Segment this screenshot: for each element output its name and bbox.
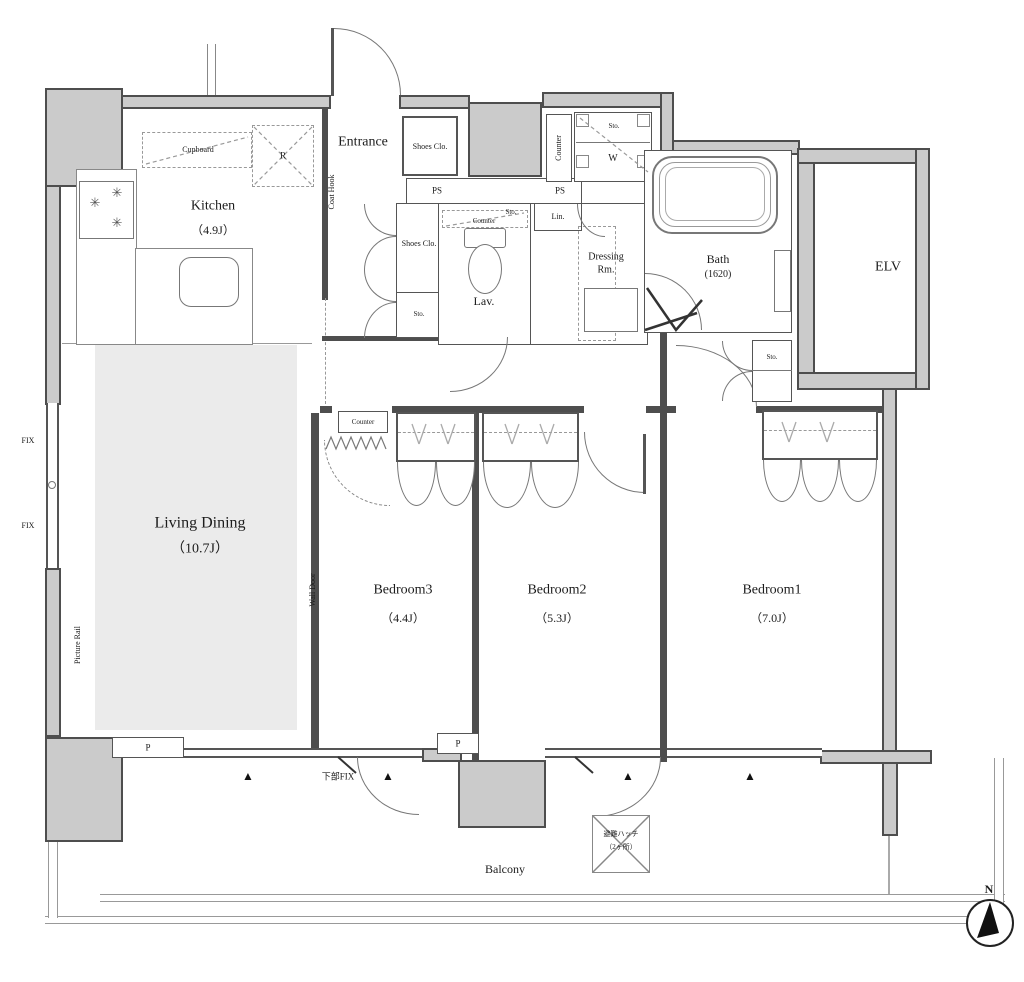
dressing-line2: Rm. (598, 264, 615, 275)
washer-pan-inner (584, 288, 638, 332)
lower-fix-label: 下部FIX (322, 772, 355, 783)
bedroom3-door-arc (324, 440, 390, 506)
shoes-door-arc-2 (364, 236, 396, 270)
lav-door-arc (450, 337, 508, 392)
shoes-door-arc-1 (364, 204, 396, 236)
balcony-edge-left (48, 842, 58, 918)
refrigerator-label: R (280, 151, 286, 162)
wall-bedroom2-1 (660, 330, 667, 762)
shoes-door-arc-4 (364, 302, 396, 338)
entrance-door-arc (334, 28, 401, 95)
bath-label: Bath (707, 252, 730, 266)
washer-label: W (608, 153, 617, 165)
cupboard-label: Cupboard (182, 145, 214, 155)
storage-hall-label: Sto. (413, 310, 424, 318)
living-dining-label: Living Dining (154, 513, 245, 532)
closet-bifold-b3-1 (397, 462, 436, 506)
bedroom1-label: Bedroom1 (742, 583, 801, 600)
elv-wall-left (797, 148, 815, 390)
picture-rail-label: Picture Rail (73, 626, 83, 664)
pillar-label-mid: P (455, 739, 460, 750)
burner-icon-1: ✳ (90, 195, 101, 211)
burner-icon-2: ✳ (112, 185, 123, 201)
closet-bifold-b1-3 (839, 460, 877, 502)
compass-north-label: N (985, 882, 994, 896)
wall-right (882, 388, 897, 752)
closet-bifold-b2-2 (531, 462, 579, 508)
balcony-rail-outer (45, 916, 1005, 924)
bath-size: (1620) (705, 269, 732, 281)
pillar-label-left: P (145, 743, 150, 754)
bedroom2-size: （5.3J） (535, 611, 579, 625)
window-marker-4: ▲ (744, 769, 756, 783)
bedroom3-size: （4.4J） (381, 611, 425, 625)
window-marker-3: ▲ (622, 769, 634, 783)
living-counter-label: Counter (352, 418, 375, 426)
closet-rail-b3 (398, 432, 474, 433)
shoes-door-arc-3 (364, 270, 396, 302)
balcony-partition-block (458, 760, 546, 828)
balcony-divider-line (888, 836, 890, 894)
kitchen-size: （4.9J） (191, 223, 235, 237)
counter-top-label: Counter (554, 135, 564, 161)
closet-rail-b1 (764, 430, 876, 431)
storage-corridor-divider (752, 370, 792, 372)
wall-bottom-right-t (820, 750, 932, 764)
shoes-closet-top-label: Shoes Clo. (409, 142, 451, 152)
stove (79, 181, 134, 239)
window-marker-2: ▲ (382, 769, 394, 783)
shaft-block (468, 102, 542, 177)
washer-corner-2 (637, 114, 650, 127)
fix-window-mullion (48, 481, 56, 489)
kitchen-opening-dashed (325, 298, 326, 404)
kitchen-label: Kitchen (191, 199, 235, 216)
ps-left-label: PS (432, 186, 442, 197)
burner-icon-3: ✳ (112, 215, 123, 231)
floor-plan: Kitchen （4.9J） Cupboard R Entrance Coat … (0, 0, 1024, 982)
washer-area-divider (576, 142, 650, 144)
window-south-right (545, 748, 822, 758)
storage-corridor-label: Sto. (766, 353, 777, 361)
bath-counter-fixture (774, 250, 791, 312)
closet-bifold-b2-1 (483, 462, 531, 508)
balcony-edge-right (994, 758, 1004, 918)
entrance-label: Entrance (338, 135, 388, 152)
storage-lav-label: Sto. (505, 208, 516, 216)
wall-top-a (121, 95, 331, 109)
kitchen-sink (179, 257, 239, 307)
wall-top-b (399, 95, 470, 109)
escape-hatch-line1: 避難ハッチ (604, 830, 639, 838)
elv-wall-top (797, 148, 930, 164)
fix-label-2: FIX (22, 521, 35, 531)
closet-bedroom2 (482, 412, 579, 462)
bedroom2-label: Bedroom2 (527, 583, 586, 600)
wall-left-lower (45, 568, 61, 737)
closet-bedroom3 (396, 412, 476, 462)
balcony-label: Balcony (485, 862, 525, 876)
elv-wall-bottom (797, 372, 930, 390)
washer-corner-1 (576, 114, 589, 127)
coat-hook-label: Coat Hook (327, 175, 337, 210)
closet-bedroom1 (762, 410, 878, 460)
elv-label: ELV (875, 260, 901, 277)
storage-top-label: Sto. (608, 122, 619, 130)
dressing-label: Dressing Rm. (588, 252, 624, 277)
living-dining-size: （10.7J） (171, 542, 229, 559)
window-marker-1: ▲ (242, 769, 254, 783)
lav-label: Lav. (474, 294, 495, 308)
closet-bifold-b1-2 (801, 460, 839, 502)
bedroom2-door-arc (584, 432, 645, 493)
ps-right-label: PS (555, 186, 565, 197)
balcony-rail-inner (100, 894, 1005, 902)
bedroom2-door-leaf (643, 434, 646, 494)
closet-bifold-b3-2 (436, 462, 475, 506)
vent-pipe (207, 44, 216, 95)
compass-circle (966, 899, 1014, 947)
wall-bottom-right-stub (882, 762, 898, 836)
dressing-line1: Dressing (588, 252, 624, 263)
bedroom3-label: Bedroom3 (373, 583, 432, 600)
wall-door-label: Wall Door (308, 573, 318, 606)
toilet-bowl (468, 244, 502, 294)
balcony-door-ld-arc (357, 757, 419, 815)
bedroom1-size: （7.0J） (750, 611, 794, 625)
lav-counter-label: Counter (473, 217, 496, 225)
washer-corner-3 (576, 155, 589, 168)
closet-rail-b2 (484, 432, 577, 433)
bathtub-inner (665, 167, 765, 221)
shoes-closet-hall-label: Shoes Clo. (399, 239, 439, 249)
balcony-door-b2-arc (595, 757, 661, 817)
linen-label: Lin. (551, 212, 564, 222)
door-gap-bedroom2 (584, 404, 646, 415)
wall-top-c (542, 92, 674, 108)
living-dining-floor (95, 345, 297, 730)
escape-hatch-line2: （2ヶ所） (605, 843, 637, 851)
fix-label-1: FIX (22, 436, 35, 446)
wall-left-upper (45, 185, 61, 405)
closet-bifold-b1-1 (763, 460, 801, 502)
elv-wall-right (915, 148, 930, 390)
